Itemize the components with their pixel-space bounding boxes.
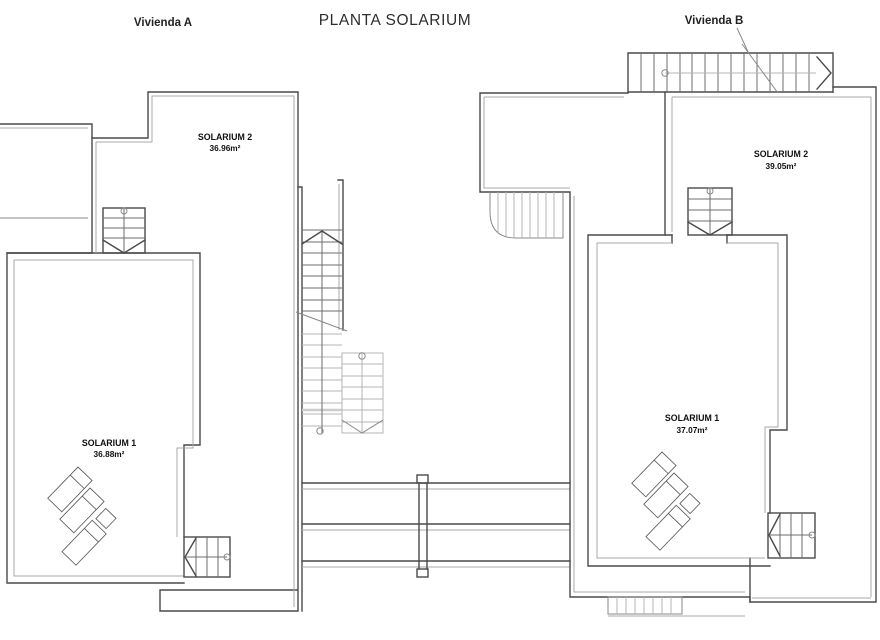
floorplan-canvas: SOLARIUM 2 36.96m² SOLARIUM 1 36.88m² (0, 0, 880, 640)
unit-a-title: Vivienda A (134, 17, 192, 29)
vivienda-b-plan: SOLARIUM 2 39.05m² SOLARIUM 1 37.07m² (480, 28, 876, 616)
label-leader-line (737, 28, 749, 54)
room-label: SOLARIUM 1 (665, 413, 719, 423)
room-area: 36.96m² (210, 143, 241, 153)
stair-direction-arrow (817, 57, 831, 89)
floorplan-drawing: SOLARIUM 2 36.96m² SOLARIUM 1 36.88m² (0, 0, 880, 640)
room-label: SOLARIUM 2 (198, 132, 252, 142)
wall-outline (92, 92, 298, 611)
wall-outline (7, 253, 200, 537)
stair-lower-b (768, 513, 815, 558)
room-area: 36.88m² (94, 449, 125, 459)
sun-loungers-a (28, 467, 126, 565)
curved-stair-landing-b (490, 192, 563, 240)
room-area: 37.07m² (677, 425, 708, 435)
room-label: SOLARIUM 2 (754, 149, 808, 159)
vivienda-a-plan: SOLARIUM 2 36.96m² SOLARIUM 1 36.88m² (0, 92, 298, 611)
sun-loungers-b (612, 452, 710, 550)
bottom-steps-b (608, 597, 745, 616)
central-staircase (296, 180, 383, 611)
stair-lower-a (184, 537, 230, 577)
page-title: PLANTA SOLARIUM (319, 12, 472, 29)
room-area: 39.05m² (766, 161, 797, 171)
unit-b-title: Vivienda B (685, 15, 744, 27)
bridge-walkway (302, 475, 570, 577)
stair-upper-b (688, 188, 732, 235)
stair-second-flight (317, 353, 383, 434)
stair-strip-top-b (641, 28, 831, 93)
stair-upper-a (103, 208, 145, 253)
room-label: SOLARIUM 1 (82, 438, 136, 448)
